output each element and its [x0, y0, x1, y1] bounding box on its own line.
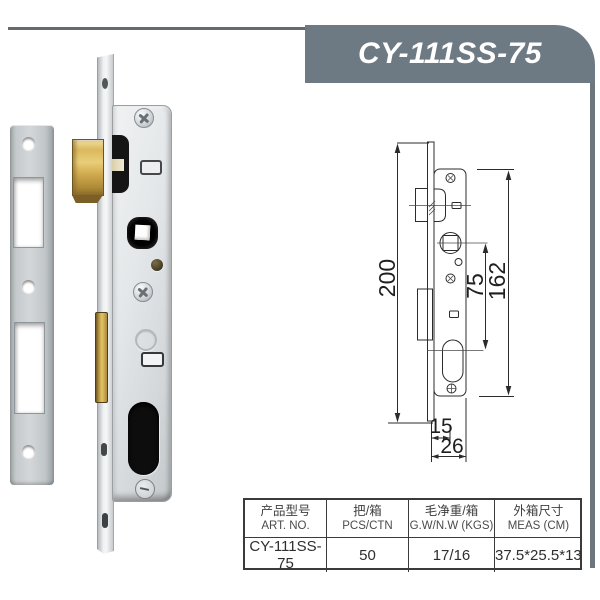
case-slot-upper	[140, 160, 162, 175]
strike-screw-hole-top	[22, 137, 35, 150]
latch-bolt-photo	[72, 139, 104, 196]
faceplate-slot-2	[102, 513, 108, 528]
faceplate-hole-top	[102, 78, 108, 89]
drawing-spindle-circle	[440, 233, 461, 254]
deadbolt-brass-edge	[95, 312, 108, 403]
small-dark-screw-icon	[151, 259, 163, 271]
frame-top-border	[8, 27, 305, 30]
case-slot-lower	[141, 352, 164, 367]
catalog-page: CY-111SS-75	[0, 0, 600, 600]
spec-value-meas: 37.5*25.5*13	[495, 538, 582, 572]
drawing-lock-outline	[409, 142, 488, 421]
strike-plate-photo	[10, 125, 54, 485]
dim-162: 162	[477, 170, 514, 397]
drawing-screw-mid	[446, 274, 455, 283]
drawing-spindle-square	[443, 236, 458, 251]
dim-200-label: 200	[374, 259, 400, 297]
spec-value-gw-nw: 17/16	[409, 538, 495, 572]
case-screw-middle-icon	[133, 282, 153, 302]
spindle-hub	[127, 217, 158, 249]
faceplate-slot-1	[101, 443, 107, 456]
dim-75-label: 75	[462, 273, 488, 299]
product-title: CY-111SS-75	[358, 37, 542, 71]
case-screw-top-icon	[134, 108, 154, 128]
drawing-screw-top-cross	[448, 176, 453, 181]
dim-26: 26	[432, 398, 467, 462]
strike-latch-cutout	[13, 177, 44, 248]
strike-screw-hole-bottom	[22, 445, 35, 458]
spec-header-gw-nw: 毛净重/箱 G.W/N.W (KGS)	[409, 500, 495, 538]
drawing-cylinder-oval	[443, 340, 464, 382]
drawing-case	[434, 169, 466, 396]
spec-value-pcs-ctn: 50	[327, 538, 409, 572]
drawing-faceplate	[428, 142, 435, 421]
dim-200: 200	[374, 143, 433, 423]
spec-header-meas: 外箱尺寸 MEAS (CM)	[495, 500, 582, 538]
embossed-ring	[135, 329, 157, 351]
spec-header-pcs-ctn: 把/箱 PCS/CTN	[327, 500, 409, 538]
latch-tail	[112, 159, 124, 171]
lock-case-photo	[112, 105, 172, 502]
latch-opening	[112, 135, 129, 193]
drawing-small-circle	[455, 259, 462, 266]
drawing-latch	[416, 189, 428, 222]
drawing-hatch	[429, 201, 435, 215]
dim-26-label: 26	[440, 435, 463, 458]
frame-right-border	[590, 80, 595, 568]
case-screw-bottom-icon	[135, 479, 155, 499]
strike-screw-hole-middle	[22, 280, 35, 293]
dim-75: 75	[462, 244, 488, 350]
dim-15: 15	[429, 415, 452, 462]
spindle-square-hole	[135, 225, 151, 241]
spec-table: 产品型号 ART. NO. 把/箱 PCS/CTN 毛净重/箱 G.W/N.W …	[243, 498, 582, 570]
dim-162-label: 162	[484, 262, 510, 300]
drawing-screw-bottom-cross	[448, 385, 456, 393]
dim-15-label: 15	[429, 415, 452, 438]
drawing-screw-top	[446, 174, 455, 183]
drawing-screw-bottom	[447, 384, 456, 393]
spec-value-art-no: CY-111SS-75	[245, 538, 327, 572]
strike-deadbolt-cutout	[14, 322, 45, 414]
cylinder-oval-hole	[128, 402, 159, 475]
title-banner: CY-111SS-75	[305, 25, 595, 83]
drawing-latch-inner	[434, 189, 446, 222]
drawing-slot-b	[450, 311, 459, 318]
drawing-screw-mid-cross	[448, 276, 453, 281]
drawing-deadbolt	[418, 289, 433, 340]
drawing-slot-a	[452, 203, 461, 209]
spec-header-art-no: 产品型号 ART. NO.	[245, 500, 327, 538]
